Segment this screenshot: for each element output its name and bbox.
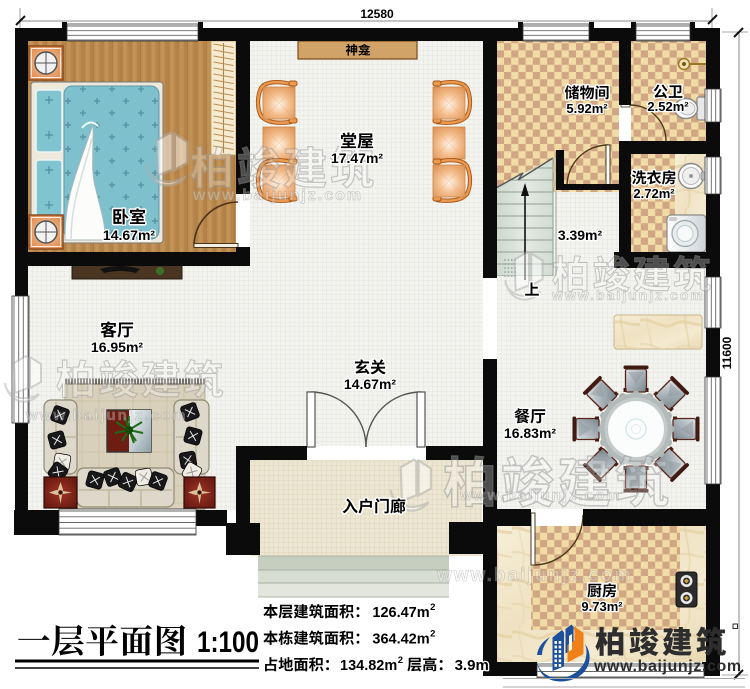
svg-text:5.92m²: 5.92m²: [566, 101, 608, 116]
svg-text:2: 2: [430, 602, 435, 613]
svg-text:2: 2: [398, 655, 403, 666]
svg-text:3.9m: 3.9m: [455, 657, 489, 674]
svg-text:14.67m²: 14.67m²: [344, 376, 396, 392]
svg-text:www.baijunjz.com: www.baijunjz.com: [551, 287, 705, 303]
svg-text:www.baijunjz.com: www.baijunjz.com: [436, 565, 633, 586]
svg-text:364.42m: 364.42m: [372, 632, 429, 648]
svg-text:www.baijunjz.com: www.baijunjz.com: [459, 487, 621, 504]
svg-text:16.95m²: 16.95m²: [91, 339, 143, 355]
svg-text:www.baijunjz.com: www.baijunjz.com: [25, 407, 187, 424]
svg-text:9.73m²: 9.73m²: [581, 599, 623, 614]
svg-text:14.67m²: 14.67m²: [103, 227, 155, 243]
svg-text:17.47m²: 17.47m²: [331, 150, 383, 166]
svg-text:1:100: 1:100: [197, 626, 259, 659]
svg-text:2.72m²: 2.72m²: [633, 186, 675, 201]
svg-text:2: 2: [430, 629, 435, 640]
svg-text:3.39m²: 3.39m²: [558, 227, 603, 243]
svg-text:126.47m: 126.47m: [372, 605, 429, 621]
svg-text:134.82m: 134.82m: [340, 658, 397, 674]
svg-text:2.52m²: 2.52m²: [647, 99, 689, 114]
svg-text:12580: 12580: [360, 7, 394, 21]
svg-text:www.baijunjz.com: www.baijunjz.com: [593, 658, 742, 675]
svg-text:www.baijunjz.com: www.baijunjz.com: [192, 187, 363, 204]
svg-text:11600: 11600: [720, 336, 734, 369]
svg-text:16.83m²: 16.83m²: [504, 425, 556, 441]
